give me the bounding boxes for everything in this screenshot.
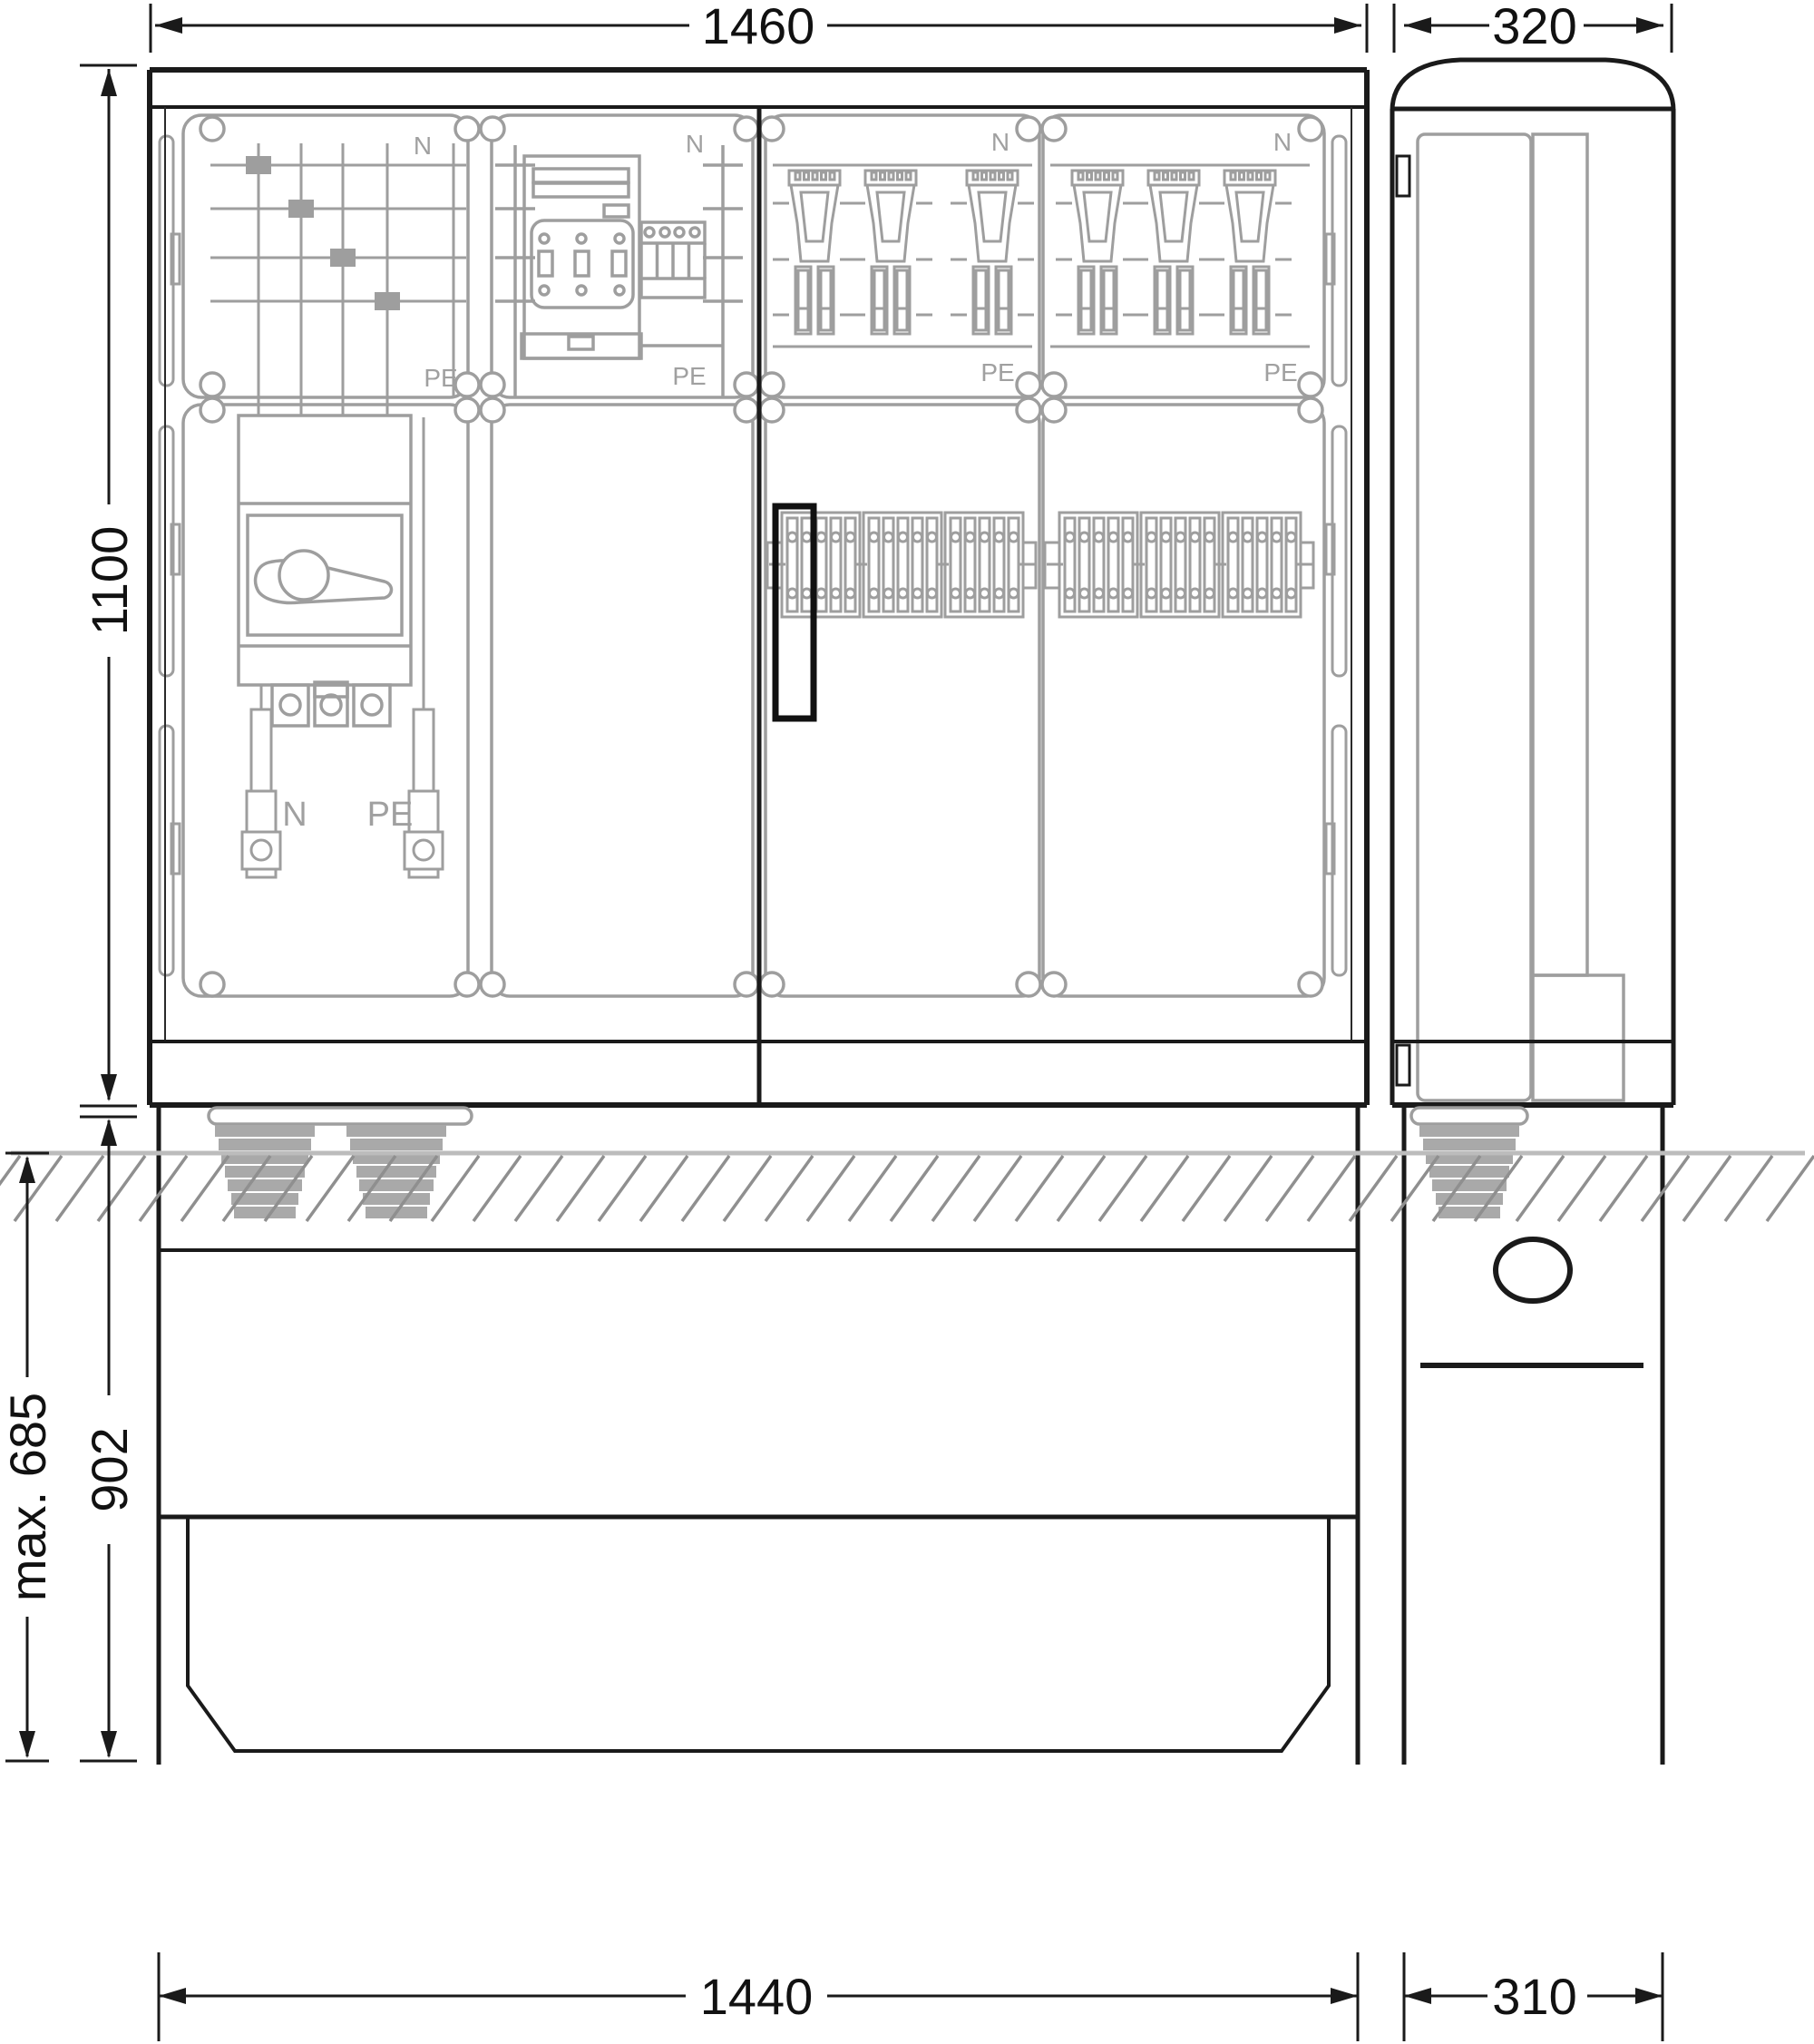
panel-n-label: N xyxy=(686,130,704,158)
dimension-front-width: 1460 xyxy=(155,0,1361,54)
neutral-bar-label: N xyxy=(282,796,307,834)
side-cable-gland xyxy=(1411,1108,1527,1218)
neutral-terminal-bar xyxy=(242,685,280,877)
mount-bracket xyxy=(1326,726,1346,975)
door-panel xyxy=(766,405,1039,996)
panel-pe-label: PE xyxy=(1263,358,1297,386)
door-hinge xyxy=(1397,1045,1409,1085)
mount-bracket xyxy=(160,136,180,386)
side-interior-components xyxy=(1418,134,1624,1100)
mount-bracket xyxy=(1326,426,1346,676)
panel-pe-label: PE xyxy=(424,364,457,392)
svg-text:1440: 1440 xyxy=(700,1968,814,2025)
meter-module-device xyxy=(495,145,743,397)
dimension-drawing: N N N N PE PE PE PE N PE xyxy=(0,0,1814,2044)
panel-n-label: N xyxy=(991,128,1009,156)
terminal-group xyxy=(1141,513,1219,617)
svg-text:1100: 1100 xyxy=(81,526,138,635)
terminal-strip-row-1 xyxy=(767,513,1036,617)
terminal-group xyxy=(945,513,1023,617)
svg-text:310: 310 xyxy=(1492,1968,1576,2025)
module-frame xyxy=(1043,115,1324,397)
side-roof-arc xyxy=(1392,60,1673,111)
nh-fuse-switch xyxy=(849,171,932,334)
svg-text:320: 320 xyxy=(1492,0,1576,54)
door-panel xyxy=(492,405,753,996)
module-frame xyxy=(766,115,1039,397)
mount-bracket xyxy=(160,426,180,676)
nh-fuse-switch xyxy=(773,171,856,334)
front-view: N N N N PE PE PE PE N PE xyxy=(150,70,1367,1765)
drawing-page: N N N N PE PE PE PE N PE xyxy=(0,0,1814,2044)
terminal-group xyxy=(782,513,860,617)
terminal-group xyxy=(1223,513,1301,617)
cable-entry-circle xyxy=(1496,1239,1570,1301)
svg-text:902: 902 xyxy=(81,1427,138,1511)
panel-pe-label: PE xyxy=(980,358,1014,386)
front-interior-components: N N N N PE PE PE PE N PE xyxy=(160,115,1346,996)
dimension-pedestal-side-width: 310 xyxy=(1404,1968,1663,2025)
panel-n-label: N xyxy=(1273,128,1292,156)
dimension-cabinet-height: 1100 xyxy=(80,65,138,1106)
panel-pe-label: PE xyxy=(672,362,706,390)
svg-text:max. 685: max. 685 xyxy=(0,1393,56,1601)
nh-fuse-switch xyxy=(1208,171,1292,334)
nh-fuse-switch xyxy=(1132,171,1215,334)
pedestal-front-plate xyxy=(188,1517,1329,1751)
dimension-side-width: 320 xyxy=(1404,0,1663,54)
pe-bar-label: PE xyxy=(367,796,414,834)
dimension-max-depth: max. 685 xyxy=(0,1153,56,1761)
din-terminal-block xyxy=(641,222,705,298)
nh-fuse-switch xyxy=(951,171,1034,334)
panel-n-label: N xyxy=(414,132,432,160)
dimension-pedestal-height: 902 xyxy=(80,1117,138,1761)
side-view xyxy=(1392,60,1673,1765)
pe-terminal-bar xyxy=(405,685,443,877)
door-hinge xyxy=(1397,156,1409,196)
switch-handle-knob xyxy=(279,551,328,600)
side-interior-profile-upper xyxy=(1533,134,1587,975)
main-switch-disconnector xyxy=(239,416,411,726)
fuse-switch-row-2 xyxy=(1050,165,1310,347)
terminal-group xyxy=(863,513,941,617)
dimension-pedestal-front-width: 1440 xyxy=(159,1968,1358,2025)
nh-fuse-switch xyxy=(1056,171,1139,334)
terminal-group xyxy=(1059,513,1137,617)
mount-bracket xyxy=(160,726,180,975)
mount-bracket xyxy=(1326,136,1346,386)
front-pedestal xyxy=(159,1105,1358,1765)
door-panel xyxy=(1043,405,1324,996)
fuse-switch-row-1 xyxy=(773,165,1034,347)
side-interior-profile-lower xyxy=(1533,975,1624,1100)
svg-text:1460: 1460 xyxy=(702,0,815,54)
side-door-profile xyxy=(1418,134,1531,1100)
terminal-strip-row-2 xyxy=(1045,513,1313,617)
door-panel xyxy=(183,405,468,996)
dimensions: 1460 320 1100 902 xyxy=(0,0,1672,2041)
